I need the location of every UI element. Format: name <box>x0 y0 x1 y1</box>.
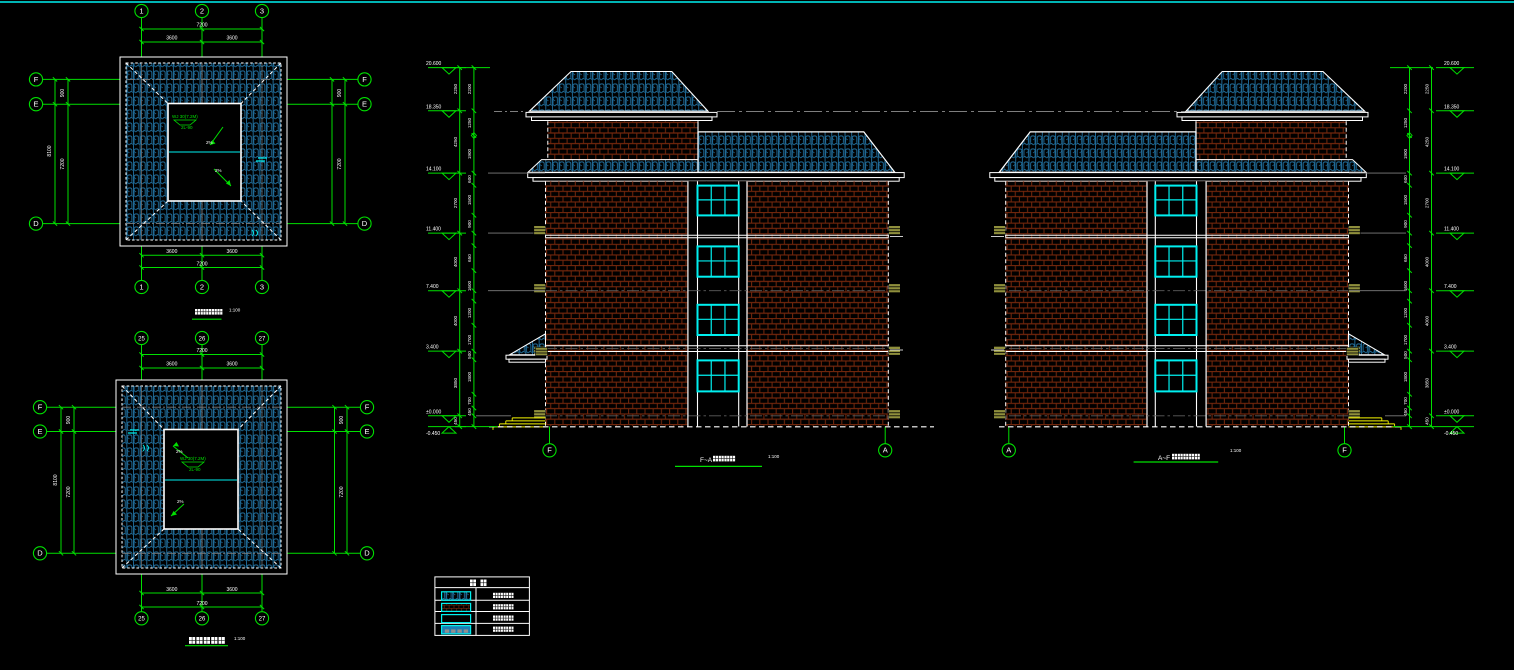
svg-text:600: 600 <box>1403 175 1408 183</box>
svg-text:D: D <box>33 219 39 228</box>
svg-text:900: 900 <box>337 89 343 98</box>
svg-text:2200: 2200 <box>1403 83 1408 94</box>
svg-text:1900: 1900 <box>1403 148 1408 159</box>
svg-text:-0.450: -0.450 <box>1444 431 1458 437</box>
svg-text:18.350: 18.350 <box>426 104 442 110</box>
svg-text:900: 900 <box>339 416 345 425</box>
svg-text:2%: 2% <box>177 499 184 504</box>
svg-text:1:100: 1:100 <box>234 636 246 641</box>
svg-text:1: 1 <box>139 6 143 15</box>
svg-text:F: F <box>34 75 39 84</box>
svg-text:500: 500 <box>467 351 472 359</box>
svg-text:F: F <box>38 403 43 412</box>
svg-text:14.100: 14.100 <box>426 167 442 173</box>
svg-text:3600: 3600 <box>226 362 237 368</box>
svg-text:1:100: 1:100 <box>1230 448 1242 453</box>
svg-text:700: 700 <box>467 397 472 405</box>
svg-text:3.400: 3.400 <box>1444 345 1457 351</box>
svg-text:2: 2 <box>200 282 204 291</box>
svg-text:650: 650 <box>1403 254 1408 262</box>
svg-text:D: D <box>37 549 43 558</box>
svg-text:4250: 4250 <box>453 136 458 147</box>
svg-text:1250: 1250 <box>1403 117 1408 128</box>
svg-text:F: F <box>365 403 370 412</box>
svg-text:500: 500 <box>1403 351 1408 359</box>
svg-text:26: 26 <box>199 617 206 623</box>
svg-text:3600: 3600 <box>166 362 177 368</box>
svg-text:26: 26 <box>199 336 206 342</box>
svg-text:E: E <box>364 427 369 436</box>
svg-text:3: 3 <box>260 6 264 15</box>
svg-text:F~A: F~A <box>700 457 713 464</box>
svg-text:650: 650 <box>467 254 472 262</box>
svg-text:1200: 1200 <box>1403 307 1408 318</box>
svg-text:450: 450 <box>467 408 472 416</box>
svg-text:450: 450 <box>1403 408 1408 416</box>
svg-text:14.100: 14.100 <box>1444 167 1460 173</box>
svg-text:±0.000: ±0.000 <box>1444 409 1459 415</box>
svg-text:11.400: 11.400 <box>426 227 441 233</box>
svg-text:1800: 1800 <box>467 371 472 382</box>
svg-text:D: D <box>364 549 370 558</box>
svg-text:7200: 7200 <box>337 158 343 169</box>
svg-text:2%: 2% <box>215 168 222 173</box>
svg-text:7200: 7200 <box>196 23 207 29</box>
svg-text:7200: 7200 <box>66 486 72 497</box>
svg-text:WJ 30(7.2M): WJ 30(7.2M) <box>172 114 198 119</box>
svg-text:2%: 2% <box>206 140 213 145</box>
svg-text:20.600: 20.600 <box>426 61 442 67</box>
svg-text:F: F <box>362 75 367 84</box>
svg-text:1:100: 1:100 <box>768 454 780 459</box>
svg-text:3600: 3600 <box>166 587 177 593</box>
svg-text:2700: 2700 <box>1425 197 1430 208</box>
svg-text:3600: 3600 <box>166 249 177 255</box>
svg-text:900: 900 <box>467 220 472 228</box>
svg-text:3600: 3600 <box>166 36 177 42</box>
svg-text:7.400: 7.400 <box>1444 284 1457 290</box>
svg-text:2250: 2250 <box>1425 83 1430 94</box>
svg-text:7200: 7200 <box>196 601 207 607</box>
svg-text:1700: 1700 <box>467 334 472 345</box>
svg-text:4000: 4000 <box>453 315 458 326</box>
svg-text:900: 900 <box>1403 220 1408 228</box>
svg-text:2200: 2200 <box>467 83 472 94</box>
svg-text:1800: 1800 <box>1403 371 1408 382</box>
svg-text:4000: 4000 <box>1425 315 1430 326</box>
svg-text:11.400: 11.400 <box>1444 227 1459 233</box>
svg-text:18.350: 18.350 <box>1444 104 1460 110</box>
svg-text:7200: 7200 <box>60 158 66 169</box>
svg-text:7200: 7200 <box>196 262 207 268</box>
svg-text:1600: 1600 <box>1403 280 1408 291</box>
svg-text:2250: 2250 <box>453 83 458 94</box>
svg-text:1: 1 <box>139 282 143 291</box>
svg-text:3600: 3600 <box>226 249 237 255</box>
svg-text:A: A <box>1006 446 1011 455</box>
svg-text:900: 900 <box>60 89 66 98</box>
svg-text:-0.450: -0.450 <box>426 431 440 437</box>
svg-text:2: 2 <box>200 6 204 15</box>
svg-text:25: 25 <box>138 617 145 623</box>
svg-text:D: D <box>362 219 368 228</box>
svg-text:3.400: 3.400 <box>426 345 439 351</box>
svg-text:4000: 4000 <box>1425 256 1430 267</box>
svg-text:2%: 2% <box>176 449 183 454</box>
svg-text:4250: 4250 <box>1425 136 1430 147</box>
svg-text:8100: 8100 <box>47 145 53 156</box>
svg-text:±0.000: ±0.000 <box>426 409 441 415</box>
svg-text:25: 25 <box>138 336 145 342</box>
svg-text:1500: 1500 <box>1403 194 1408 205</box>
svg-text:2L-90: 2L-90 <box>189 467 201 472</box>
svg-text:E: E <box>37 427 42 436</box>
svg-text:1200: 1200 <box>467 307 472 318</box>
svg-text:WJ 30(7.2M): WJ 30(7.2M) <box>180 456 206 461</box>
svg-text:700: 700 <box>1403 397 1408 405</box>
svg-text:1900: 1900 <box>467 148 472 159</box>
svg-text:E: E <box>33 100 38 109</box>
svg-text:7200: 7200 <box>339 486 345 497</box>
svg-text:27: 27 <box>259 336 266 342</box>
svg-text:E: E <box>362 100 367 109</box>
svg-text:20.600: 20.600 <box>1444 61 1460 67</box>
svg-text:1:100: 1:100 <box>229 308 241 313</box>
svg-text:2700: 2700 <box>453 197 458 208</box>
svg-text:1250: 1250 <box>467 117 472 128</box>
svg-text:8100: 8100 <box>53 474 59 485</box>
svg-text:3600: 3600 <box>226 36 237 42</box>
svg-text:2L-90: 2L-90 <box>181 125 193 130</box>
svg-text:7200: 7200 <box>196 348 207 354</box>
svg-text:600: 600 <box>467 175 472 183</box>
svg-text:3: 3 <box>260 282 264 291</box>
svg-text:1500: 1500 <box>467 194 472 205</box>
svg-text:3600: 3600 <box>226 587 237 593</box>
svg-text:F: F <box>547 446 552 455</box>
svg-text:27: 27 <box>259 617 266 623</box>
svg-text:A: A <box>883 446 888 455</box>
svg-text:900: 900 <box>66 416 72 425</box>
svg-text:F: F <box>1342 446 1347 455</box>
svg-text:3850: 3850 <box>453 377 458 388</box>
svg-text:4000: 4000 <box>453 256 458 267</box>
svg-text:A~F: A~F <box>1158 455 1170 462</box>
svg-text:1700: 1700 <box>1403 334 1408 345</box>
svg-text:3850: 3850 <box>1425 377 1430 388</box>
svg-text:1600: 1600 <box>467 280 472 291</box>
svg-text:7.400: 7.400 <box>426 284 439 290</box>
svg-text:450: 450 <box>1425 417 1430 425</box>
